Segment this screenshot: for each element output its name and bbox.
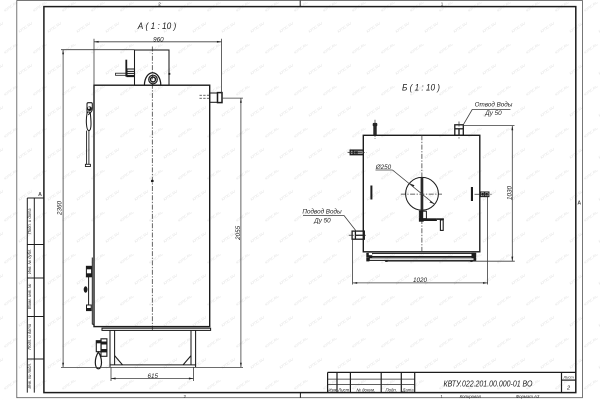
svg-text:Взам. инв. №: Взам. инв. № <box>27 283 32 309</box>
svg-text:615: 615 <box>148 373 159 380</box>
svg-text:2: 2 <box>184 394 187 399</box>
svg-text:1: 1 <box>440 394 443 399</box>
svg-text:1030: 1030 <box>506 186 513 201</box>
svg-text:А ( 1 : 10 ): А ( 1 : 10 ) <box>137 21 176 31</box>
svg-text:Лист: Лист <box>337 387 349 392</box>
svg-text:2360: 2360 <box>56 201 63 217</box>
svg-text:1020: 1020 <box>413 277 428 284</box>
svg-text:Инв. № подл.: Инв. № подл. <box>27 363 32 388</box>
svg-text:Формат А3: Формат А3 <box>516 394 540 399</box>
svg-text:Подп. и дата: Подп. и дата <box>27 323 32 349</box>
svg-text:2: 2 <box>158 1 161 6</box>
svg-text:Подвод Воды: Подвод Воды <box>302 208 342 216</box>
svg-text:Отвод Воды: Отвод Воды <box>475 101 513 109</box>
svg-text:Б ( 1 : 10 ): Б ( 1 : 10 ) <box>402 83 440 93</box>
svg-text:Лист: Лист <box>562 374 574 379</box>
svg-text:Инв. № дубл.: Инв. № дубл. <box>27 249 32 274</box>
svg-text:А: А <box>577 201 581 207</box>
svg-text:Копировал: Копировал <box>460 394 482 399</box>
svg-text:А: А <box>38 192 42 198</box>
svg-text:Ду 50: Ду 50 <box>313 217 331 224</box>
svg-text:Изм: Изм <box>328 387 336 392</box>
svg-text:Подп. и дата: Подп. и дата <box>27 208 32 234</box>
svg-text:КВТУ.022.201.00.000-01 ВО: КВТУ.022.201.00.000-01 ВО <box>444 378 533 388</box>
svg-text:Ду 50: Ду 50 <box>484 110 502 117</box>
svg-text:2055: 2055 <box>235 225 242 241</box>
svg-text:960: 960 <box>153 36 164 43</box>
svg-text:1: 1 <box>441 1 444 6</box>
svg-text:Дата: Дата <box>401 387 414 392</box>
svg-text:Подп.: Подп. <box>385 387 396 392</box>
svg-text:№ докум.: № докум. <box>356 387 375 392</box>
